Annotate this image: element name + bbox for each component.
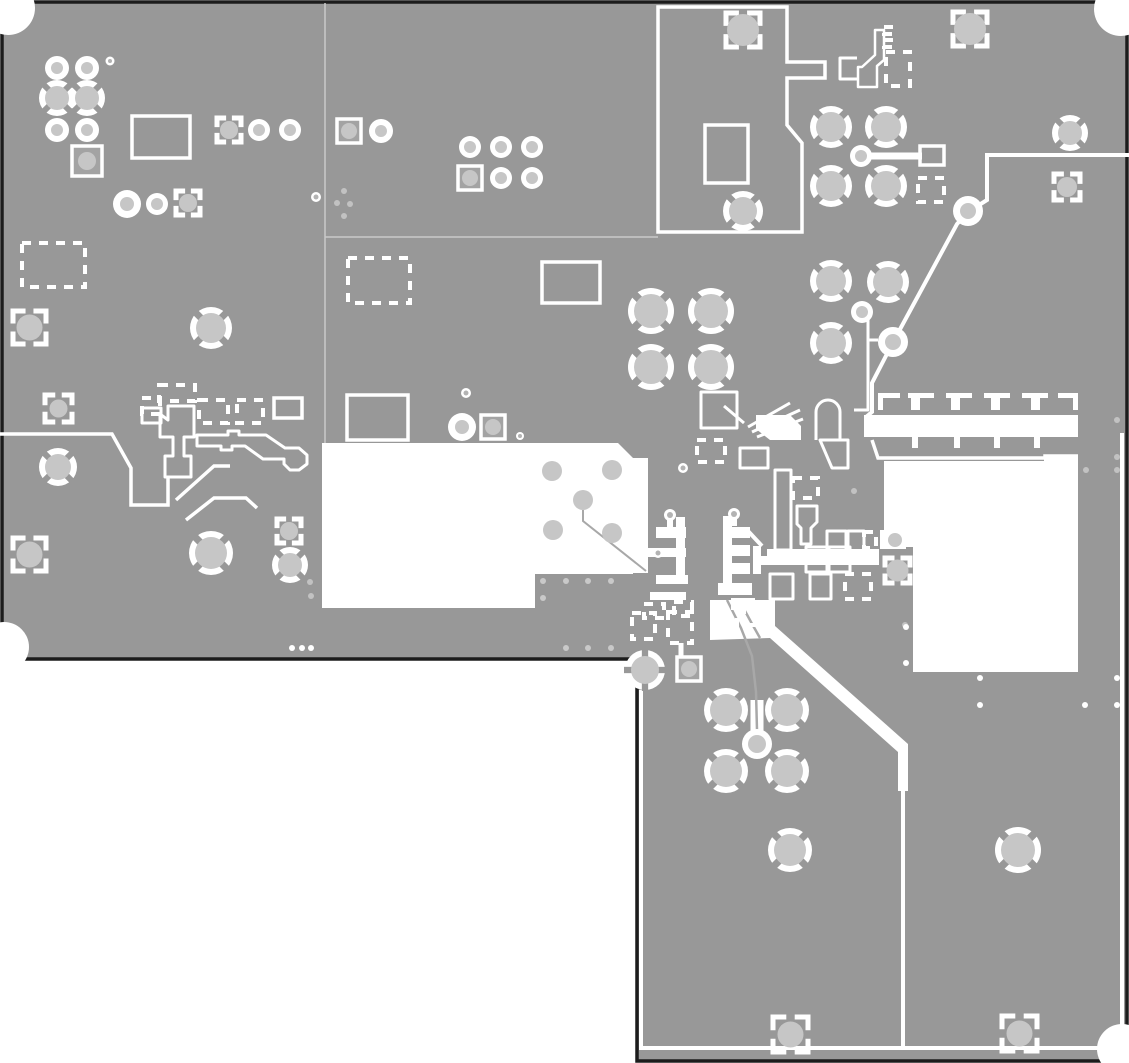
pcb-copper-layer-drawing [0,0,1129,1063]
pcb-layout-viewer [0,0,1129,1063]
